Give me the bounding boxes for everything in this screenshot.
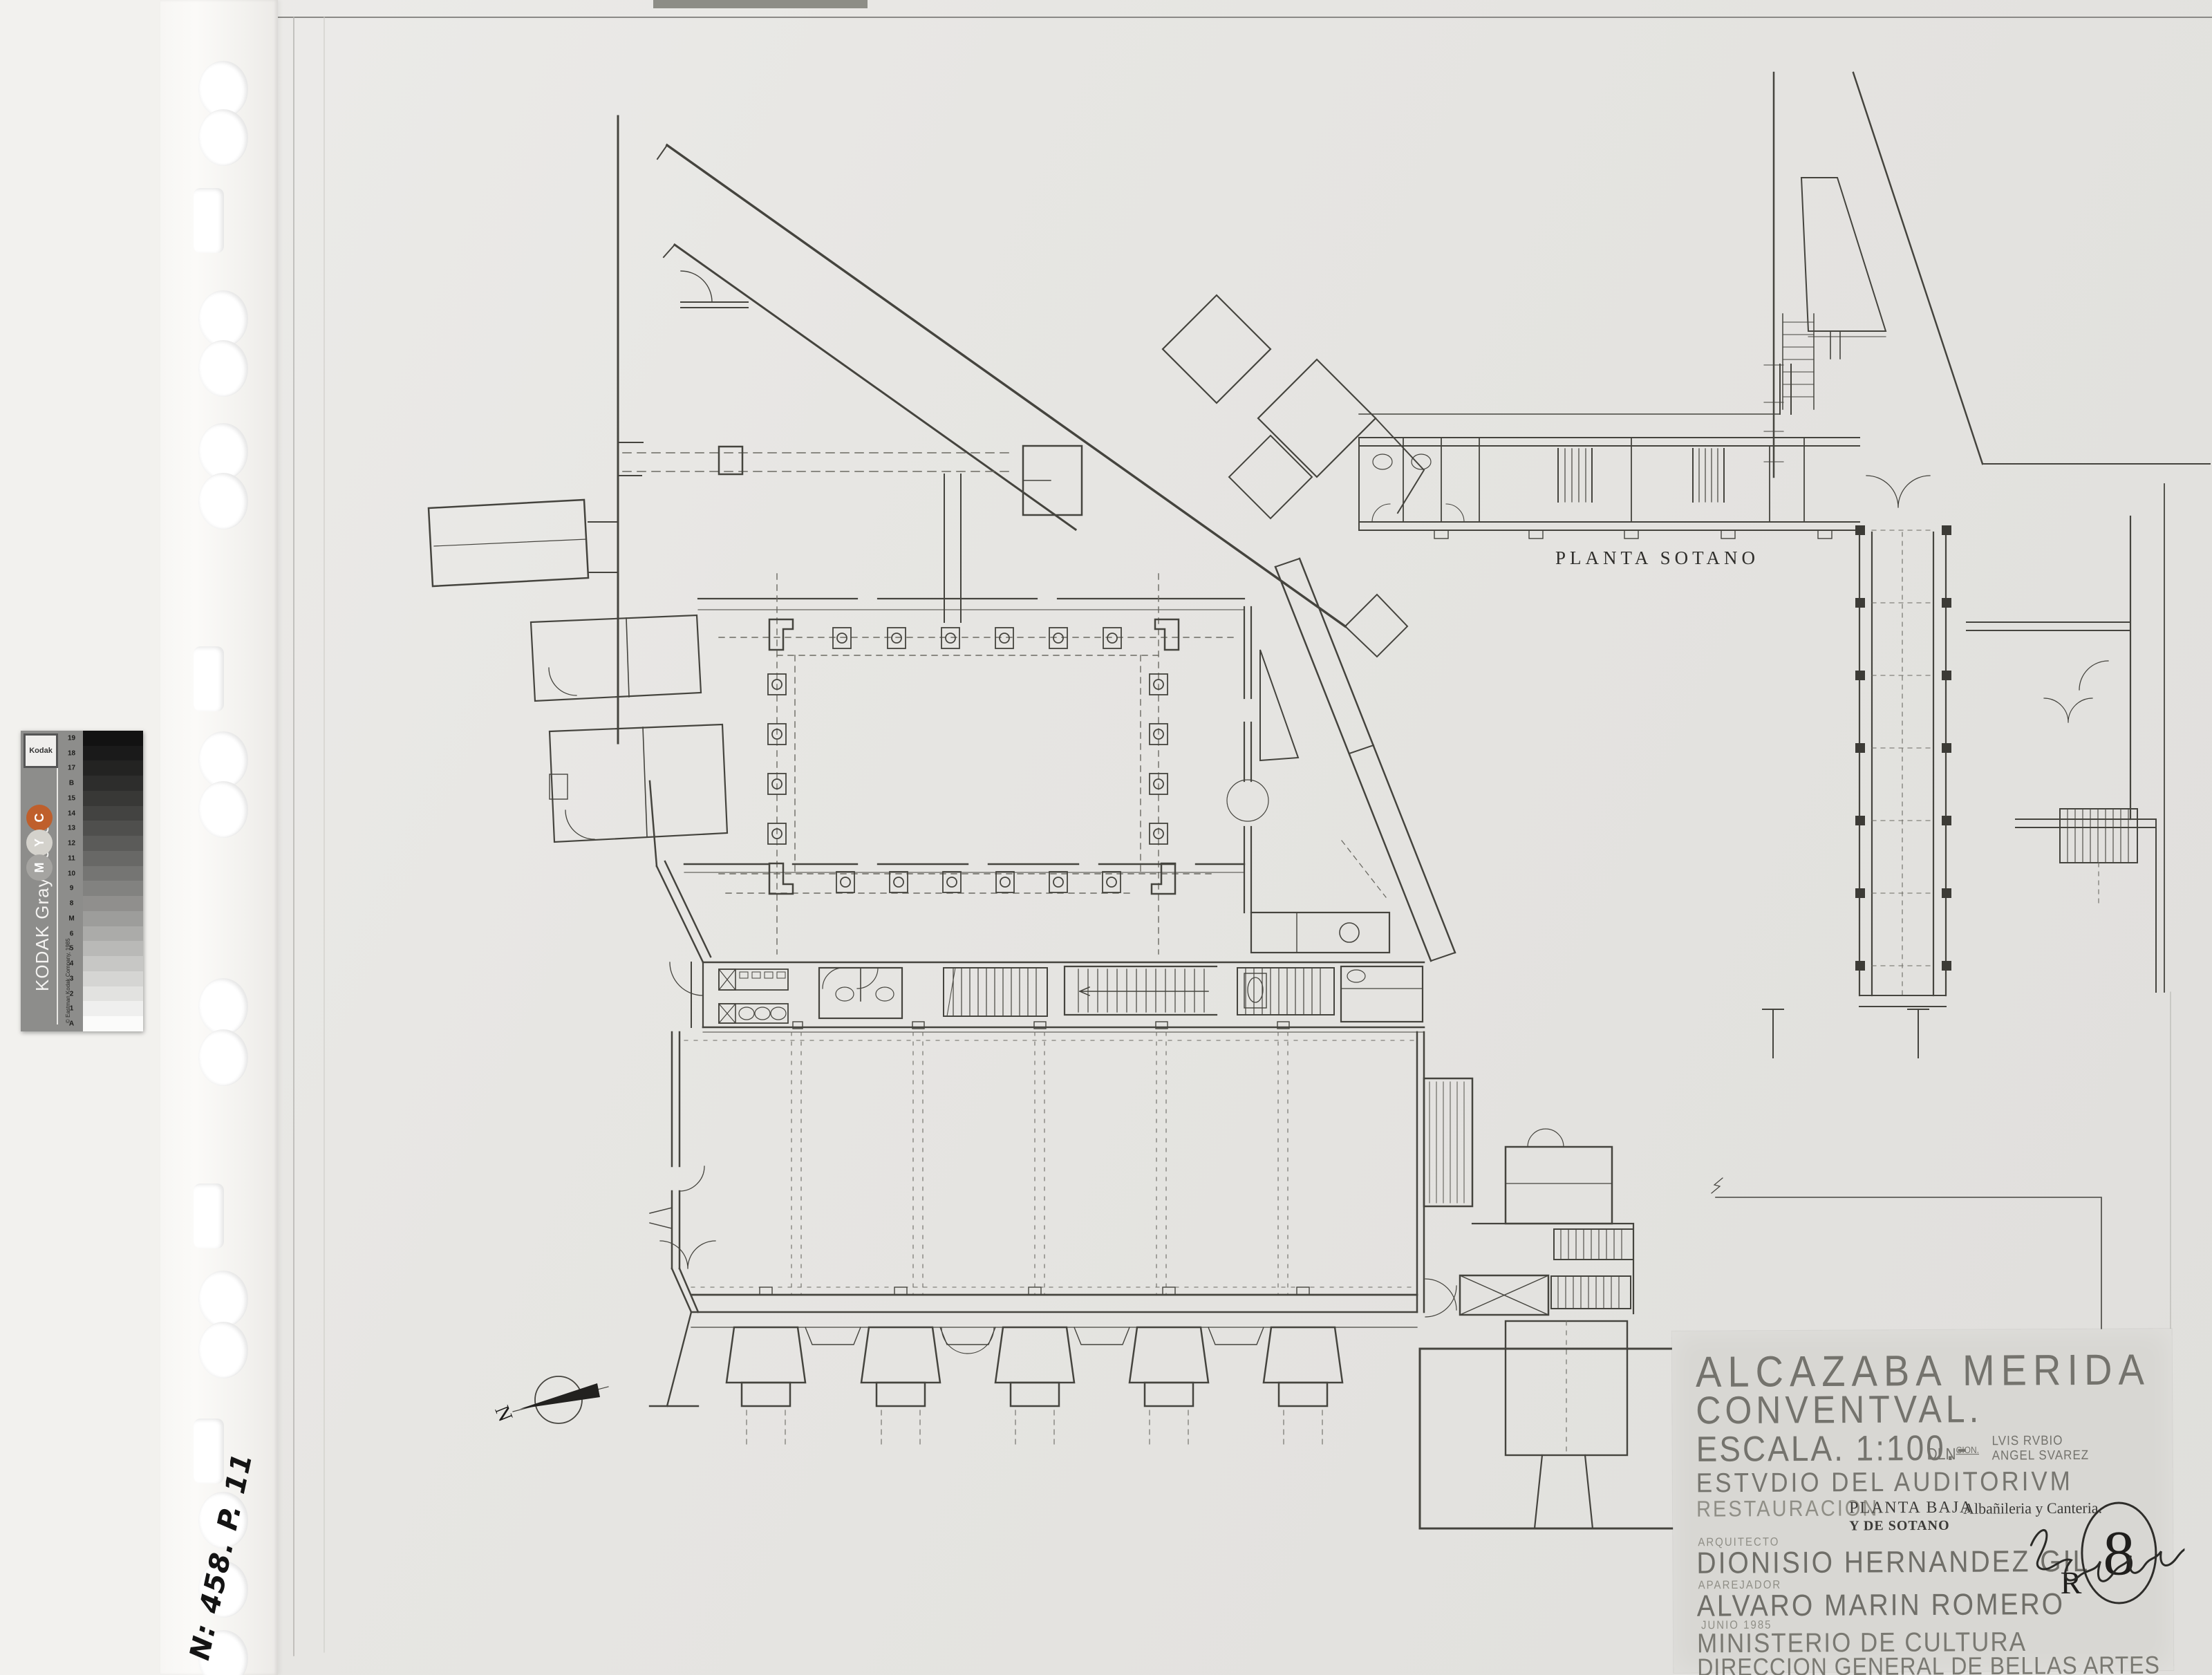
- kodak-patch: 5: [83, 942, 143, 957]
- dln-abbrev: DLN: [1927, 1445, 1956, 1463]
- punch-hole: [198, 423, 248, 480]
- kodak-patch: 1: [83, 1002, 143, 1017]
- kodak-rule: [57, 755, 58, 1024]
- drafter-2: ANGEL SVAREZ: [1992, 1448, 2090, 1463]
- planta-baja-plan: [429, 116, 1713, 1528]
- kodak-patch: 13: [83, 821, 143, 836]
- punch-hole: [198, 731, 248, 788]
- kodak-patch: 11: [83, 851, 143, 866]
- scanned-sheet: PLANTA SOTANO N KODAK Gray Scale © Eastm…: [0, 0, 2212, 1675]
- kodak-logo: Kodak: [24, 733, 58, 768]
- drafter-1: LVIS RVBIO: [1991, 1433, 2089, 1448]
- scan-edge-artifact: [653, 0, 868, 8]
- kodak-patch: 4: [83, 956, 143, 971]
- kodak-patch: 6: [83, 926, 143, 942]
- north-letter: N: [490, 1403, 517, 1425]
- punch-hole: [198, 340, 248, 397]
- kodak-patch: 19: [83, 731, 143, 746]
- signature-scribble: [2018, 1515, 2185, 1606]
- cloister-columns: [768, 628, 1168, 892]
- punch-hole: [198, 1029, 248, 1086]
- kodak-dot-m: M: [26, 854, 53, 881]
- kodak-patch: 12: [83, 836, 143, 851]
- dln-sup: CION.: [1956, 1445, 1979, 1456]
- planta-baja-label: PLANTA BAJA: [1849, 1499, 1974, 1518]
- study-line: ESTVDIO DEL AUDITORIVM: [1696, 1466, 2073, 1499]
- kodak-dot-c: C: [26, 805, 53, 831]
- albanileria-note: Albañileria y Canteria.: [1963, 1499, 2102, 1518]
- kodak-patch: A: [83, 1016, 143, 1031]
- kodak-patch: M: [83, 911, 143, 926]
- kodak-card-face: KODAK Gray Scale © Eastman Kodak Company…: [21, 731, 143, 1031]
- kodak-patch: B: [83, 776, 143, 791]
- kodak-brand-text: Kodak: [29, 747, 53, 755]
- kodak-patches: A123456M89101112131415B171819: [83, 731, 143, 1031]
- punch-slot: [194, 646, 224, 711]
- auditorium-hall: [650, 1032, 1472, 1312]
- punch-hole: [198, 781, 248, 838]
- kodak-patch: 2: [83, 986, 143, 1002]
- service-corridor: [670, 962, 1424, 1032]
- kodak-patch: 9: [83, 881, 143, 897]
- punch-slot: [194, 1419, 224, 1484]
- north-arrow-icon: [513, 1376, 608, 1423]
- planta-sotano-plan: [1359, 73, 2210, 1493]
- punch-hole: [198, 109, 248, 166]
- punch-slot: [194, 188, 224, 253]
- punch-slot: [194, 1183, 224, 1248]
- project-title-line2: CONVENTVAL.: [1696, 1387, 1983, 1433]
- delineation-label: DLNCION.: [1927, 1445, 1980, 1464]
- direccion-line: DIRECCION GENERAL DE BELLAS ARTES: [1697, 1651, 2160, 1675]
- kodak-dot-y: Y: [26, 830, 53, 856]
- punch-hole: [198, 1322, 248, 1378]
- kodak-patch: 10: [83, 866, 143, 881]
- kodak-gray-scale-card: KODAK Gray Scale © Eastman Kodak Company…: [21, 731, 143, 1031]
- punch-hole: [198, 978, 248, 1035]
- kodak-label-area: KODAK Gray Scale © Eastman Kodak Company…: [21, 731, 83, 1031]
- kodak-patch: 18: [83, 746, 143, 761]
- kodak-patch: 3: [83, 971, 143, 986]
- buttress-row: [650, 1312, 1417, 1448]
- sotano-right-annex: [1967, 516, 2156, 992]
- kodak-patch: 15: [83, 791, 143, 806]
- punch-hole: [198, 290, 248, 347]
- filing-strip: [160, 0, 278, 1675]
- planta-sotano-label: PLANTA SOTANO: [1555, 548, 1759, 568]
- punch-hole: [198, 1271, 248, 1327]
- kodak-patch: 8: [83, 896, 143, 911]
- title-block: ALCAZABA MERIDA CONVENTVAL. ESCALA. 1:10…: [1672, 1329, 2174, 1673]
- diagonal-wing-and-bastions: [1163, 295, 1455, 1008]
- cloister-courtyard: [684, 574, 1244, 954]
- west-annex-rooms: [429, 500, 727, 842]
- kodak-patch: 17: [83, 761, 143, 776]
- drafters: LVIS RVBIO ANGEL SVAREZ: [1991, 1433, 2089, 1463]
- kodak-patch: 14: [83, 806, 143, 821]
- y-de-sotano-label: Y DE SOTANO: [1849, 1518, 1950, 1535]
- sotano-vaulted-wing: [1855, 525, 1951, 1007]
- punch-hole: [198, 473, 248, 530]
